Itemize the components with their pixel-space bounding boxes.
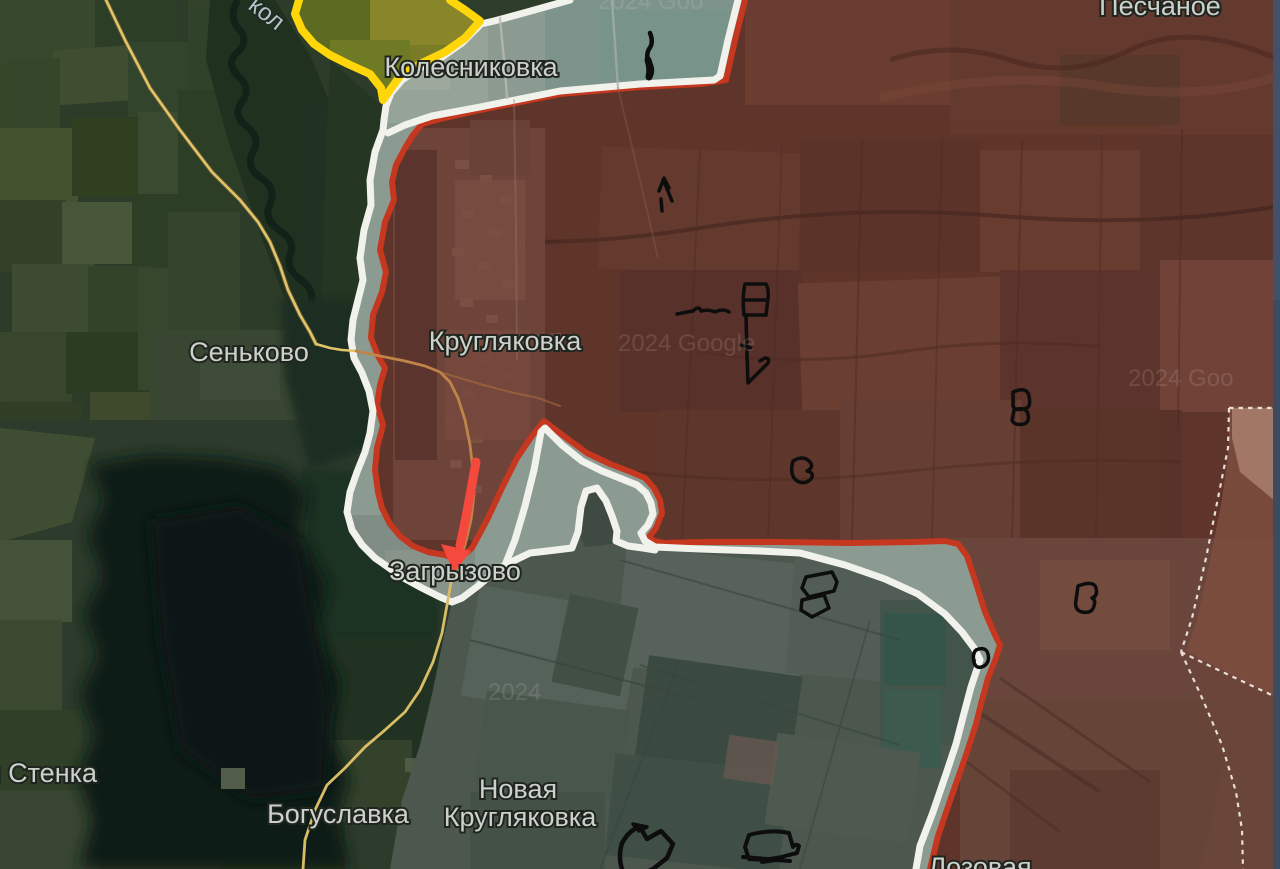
svg-text:я Стенка: я Стенка: [0, 758, 98, 788]
svg-text:Кругляковка: Кругляковка: [429, 326, 582, 356]
svg-text:Новая: Новая: [479, 774, 557, 804]
svg-text:Лозовая: Лозовая: [928, 852, 1031, 869]
svg-text:Песчаное: Песчаное: [1099, 0, 1221, 21]
svg-text:Богуславка: Богуславка: [267, 799, 410, 829]
svg-text:Кругляковка: Кругляковка: [444, 802, 597, 832]
svg-text:Загрызово: Загрызово: [389, 556, 521, 586]
svg-text:Сеньково: Сеньково: [189, 337, 309, 367]
svg-text:2024: 2024: [488, 679, 541, 706]
svg-text:Колесниковка: Колесниковка: [384, 52, 558, 82]
svg-text:2024 Goo: 2024 Goo: [598, 0, 703, 15]
svg-text:2024 Goo: 2024 Goo: [1128, 365, 1233, 392]
svg-text:2024 Google: 2024 Google: [618, 330, 755, 357]
